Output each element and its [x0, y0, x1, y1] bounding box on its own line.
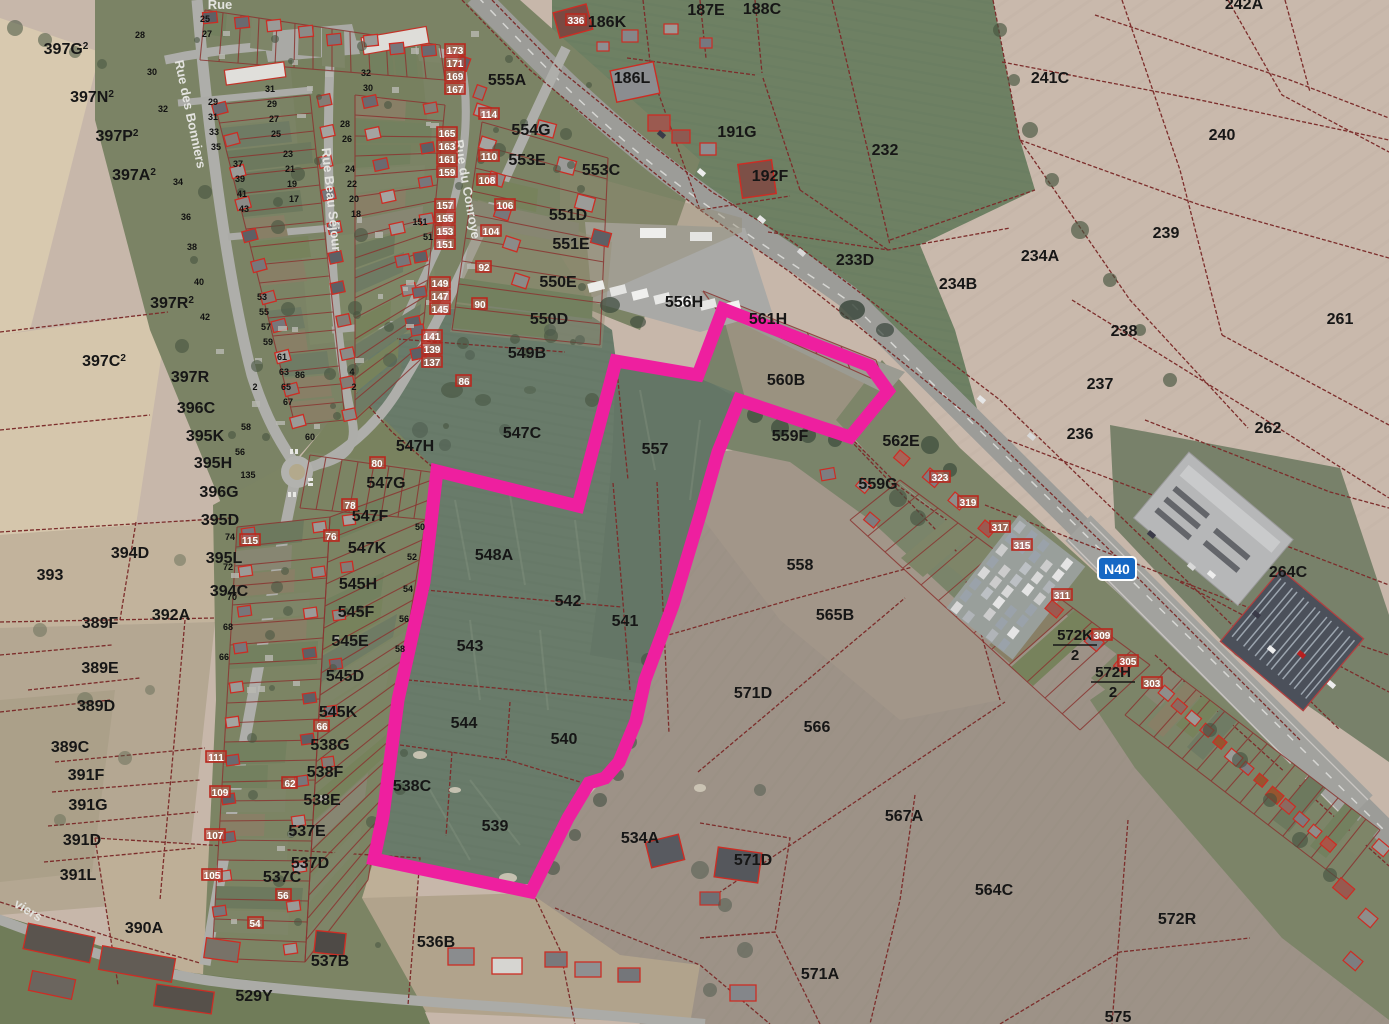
- svg-text:171: 171: [447, 59, 464, 70]
- svg-text:192F: 192F: [752, 168, 789, 185]
- svg-text:106: 106: [497, 201, 514, 212]
- svg-text:233D: 233D: [836, 252, 874, 269]
- svg-text:397P2: 397P2: [96, 128, 139, 145]
- svg-text:536B: 536B: [417, 934, 455, 951]
- svg-text:54: 54: [403, 584, 413, 594]
- svg-text:90: 90: [474, 300, 486, 311]
- svg-text:537B: 537B: [311, 953, 349, 970]
- svg-text:17: 17: [289, 194, 299, 204]
- svg-text:33: 33: [209, 127, 219, 137]
- svg-text:187E: 187E: [687, 2, 725, 19]
- svg-text:22: 22: [347, 179, 357, 189]
- svg-text:163: 163: [439, 142, 456, 153]
- svg-text:315: 315: [1014, 541, 1031, 552]
- svg-text:21: 21: [285, 164, 295, 174]
- svg-text:25: 25: [200, 14, 210, 24]
- svg-text:42: 42: [200, 312, 210, 322]
- svg-text:60: 60: [305, 432, 315, 442]
- svg-text:395D: 395D: [201, 512, 239, 529]
- svg-text:78: 78: [344, 501, 356, 512]
- svg-text:567A: 567A: [885, 808, 924, 825]
- svg-text:151: 151: [412, 217, 427, 227]
- svg-text:234A: 234A: [1021, 248, 1060, 265]
- svg-text:32: 32: [361, 68, 371, 78]
- svg-text:169: 169: [447, 72, 464, 83]
- svg-text:54: 54: [249, 919, 261, 930]
- svg-text:239: 239: [1153, 225, 1180, 242]
- svg-text:562E: 562E: [882, 433, 920, 450]
- svg-text:305: 305: [1120, 657, 1137, 668]
- svg-text:186K: 186K: [588, 14, 627, 31]
- svg-text:59: 59: [263, 337, 273, 347]
- svg-text:80: 80: [371, 459, 383, 470]
- svg-text:165: 165: [439, 129, 456, 140]
- svg-text:109: 109: [212, 788, 229, 799]
- svg-text:39: 39: [235, 174, 245, 184]
- svg-text:547H: 547H: [396, 438, 434, 455]
- svg-text:551E: 551E: [552, 236, 590, 253]
- svg-text:139: 139: [424, 345, 441, 356]
- svg-text:92: 92: [478, 263, 490, 274]
- svg-text:241C: 241C: [1031, 70, 1070, 87]
- svg-text:58: 58: [395, 644, 405, 654]
- svg-text:36: 36: [181, 212, 191, 222]
- svg-text:551D: 551D: [549, 207, 587, 224]
- svg-text:541: 541: [612, 613, 639, 630]
- svg-text:191G: 191G: [717, 124, 756, 141]
- svg-text:20: 20: [349, 194, 359, 204]
- svg-text:262: 262: [1255, 420, 1282, 437]
- svg-text:240: 240: [1209, 127, 1236, 144]
- svg-text:35: 35: [211, 142, 221, 152]
- svg-text:323: 323: [932, 473, 949, 484]
- svg-text:547K: 547K: [348, 540, 387, 557]
- svg-text:19: 19: [287, 179, 297, 189]
- svg-text:63: 63: [279, 367, 289, 377]
- svg-text:86: 86: [458, 377, 470, 388]
- svg-text:391F: 391F: [68, 767, 105, 784]
- svg-text:571D: 571D: [734, 852, 772, 869]
- svg-text:24: 24: [345, 164, 355, 174]
- svg-text:28: 28: [340, 119, 350, 129]
- svg-text:159: 159: [439, 168, 456, 179]
- svg-text:548A: 548A: [475, 547, 514, 564]
- svg-text:557: 557: [642, 441, 669, 458]
- svg-text:37: 37: [233, 159, 243, 169]
- svg-text:40: 40: [194, 277, 204, 287]
- svg-text:30: 30: [147, 67, 157, 77]
- svg-text:537C: 537C: [263, 869, 302, 886]
- svg-text:397C2: 397C2: [82, 353, 126, 370]
- svg-text:317: 317: [992, 523, 1009, 534]
- svg-text:565B: 565B: [816, 607, 854, 624]
- svg-text:236: 236: [1067, 426, 1094, 443]
- svg-text:537E: 537E: [288, 823, 326, 840]
- svg-text:389D: 389D: [77, 698, 115, 715]
- svg-text:391G: 391G: [68, 797, 107, 814]
- svg-text:390A: 390A: [125, 920, 164, 937]
- svg-text:391L: 391L: [60, 867, 97, 884]
- svg-text:572K: 572K: [1057, 627, 1093, 644]
- svg-text:549B: 549B: [508, 345, 546, 362]
- svg-text:56: 56: [399, 614, 409, 624]
- svg-text:56: 56: [235, 447, 245, 457]
- svg-text:545H: 545H: [339, 576, 377, 593]
- svg-text:566: 566: [804, 719, 831, 736]
- svg-text:389F: 389F: [82, 615, 119, 632]
- svg-text:558: 558: [787, 557, 814, 574]
- svg-text:397N2: 397N2: [70, 89, 114, 106]
- svg-text:74: 74: [225, 532, 235, 542]
- svg-text:2: 2: [351, 382, 356, 392]
- svg-text:538C: 538C: [393, 778, 432, 795]
- svg-text:264C: 264C: [1269, 564, 1308, 581]
- svg-text:186L: 186L: [614, 70, 651, 87]
- svg-text:108: 108: [479, 176, 496, 187]
- svg-text:149: 149: [432, 279, 449, 290]
- svg-text:396G: 396G: [199, 484, 238, 501]
- svg-text:539: 539: [482, 818, 509, 835]
- svg-text:550D: 550D: [530, 311, 568, 328]
- svg-text:111: 111: [208, 753, 224, 764]
- svg-text:545F: 545F: [338, 604, 375, 621]
- svg-text:151: 151: [437, 240, 454, 251]
- svg-text:23: 23: [283, 149, 293, 159]
- svg-text:529Y: 529Y: [235, 988, 273, 1005]
- svg-text:155: 155: [437, 214, 454, 225]
- svg-text:309: 309: [1094, 631, 1111, 642]
- svg-text:114: 114: [481, 110, 498, 121]
- svg-text:53: 53: [257, 292, 267, 302]
- svg-text:29: 29: [267, 99, 277, 109]
- svg-text:51: 51: [423, 232, 433, 242]
- svg-text:319: 319: [960, 498, 977, 509]
- svg-text:29: 29: [208, 97, 218, 107]
- svg-text:392A: 392A: [152, 607, 191, 624]
- svg-text:540: 540: [551, 731, 578, 748]
- svg-text:395K: 395K: [186, 428, 225, 445]
- svg-text:397R: 397R: [171, 369, 210, 386]
- svg-text:153: 153: [437, 227, 454, 238]
- svg-text:538F: 538F: [307, 764, 344, 781]
- svg-text:30: 30: [363, 83, 373, 93]
- svg-text:336: 336: [568, 16, 585, 27]
- svg-text:56: 56: [277, 891, 289, 902]
- svg-text:61: 61: [277, 352, 287, 362]
- svg-text:394D: 394D: [111, 545, 149, 562]
- svg-text:571A: 571A: [801, 966, 840, 983]
- svg-text:237: 237: [1087, 376, 1114, 393]
- svg-text:141: 141: [424, 332, 441, 343]
- svg-text:397R2: 397R2: [150, 295, 194, 312]
- svg-text:391D: 391D: [63, 832, 101, 849]
- svg-text:41: 41: [237, 189, 247, 199]
- svg-text:107: 107: [207, 831, 224, 842]
- svg-text:559G: 559G: [858, 476, 897, 493]
- svg-text:31: 31: [208, 112, 218, 122]
- svg-text:545E: 545E: [331, 633, 369, 650]
- svg-text:232: 232: [872, 142, 899, 159]
- svg-text:135: 135: [240, 470, 255, 480]
- svg-text:572R: 572R: [1158, 911, 1197, 928]
- svg-text:76: 76: [325, 532, 337, 543]
- svg-text:538G: 538G: [310, 737, 349, 754]
- svg-text:Rue: Rue: [208, 0, 233, 12]
- svg-text:547G: 547G: [366, 475, 405, 492]
- svg-text:561H: 561H: [749, 311, 787, 328]
- svg-text:311: 311: [1054, 591, 1071, 602]
- svg-text:62: 62: [284, 779, 296, 790]
- svg-text:110: 110: [481, 152, 498, 163]
- svg-text:43: 43: [239, 204, 249, 214]
- svg-text:70: 70: [227, 592, 237, 602]
- svg-text:555A: 555A: [488, 72, 527, 89]
- svg-text:68: 68: [223, 622, 233, 632]
- svg-text:534A: 534A: [621, 830, 660, 847]
- svg-text:167: 167: [447, 85, 464, 96]
- svg-text:137: 137: [424, 358, 441, 369]
- svg-text:397A2: 397A2: [112, 167, 156, 184]
- svg-text:543: 543: [457, 638, 484, 655]
- svg-text:55: 55: [259, 307, 269, 317]
- svg-text:105: 105: [204, 871, 221, 882]
- svg-text:389E: 389E: [81, 660, 119, 677]
- svg-text:242A: 242A: [1225, 0, 1264, 13]
- svg-text:545K: 545K: [319, 704, 358, 721]
- svg-text:57: 57: [261, 322, 271, 332]
- svg-text:397G2: 397G2: [44, 41, 89, 58]
- svg-text:27: 27: [269, 114, 279, 124]
- svg-text:26: 26: [342, 134, 352, 144]
- svg-text:559F: 559F: [772, 428, 809, 445]
- svg-text:67: 67: [283, 397, 293, 407]
- svg-text:N40: N40: [1104, 561, 1130, 577]
- svg-text:553C: 553C: [582, 162, 621, 179]
- svg-text:547C: 547C: [503, 425, 542, 442]
- svg-text:147: 147: [432, 292, 449, 303]
- svg-text:389C: 389C: [51, 739, 90, 756]
- svg-text:261: 261: [1327, 311, 1354, 328]
- svg-text:157: 157: [437, 201, 454, 212]
- svg-text:2: 2: [1109, 684, 1117, 701]
- svg-text:38: 38: [187, 242, 197, 252]
- svg-text:395H: 395H: [194, 455, 232, 472]
- svg-text:234B: 234B: [939, 276, 977, 293]
- svg-text:65: 65: [281, 382, 291, 392]
- svg-text:115: 115: [242, 536, 259, 547]
- svg-text:238: 238: [1111, 323, 1138, 340]
- svg-text:560B: 560B: [767, 372, 805, 389]
- svg-text:553E: 553E: [508, 152, 546, 169]
- svg-text:554G: 554G: [511, 122, 550, 139]
- svg-text:564C: 564C: [975, 882, 1014, 899]
- svg-text:66: 66: [219, 652, 229, 662]
- svg-text:4: 4: [349, 367, 354, 377]
- svg-text:145: 145: [432, 305, 449, 316]
- svg-text:31: 31: [265, 84, 275, 94]
- svg-text:550E: 550E: [539, 274, 577, 291]
- svg-text:2: 2: [252, 382, 257, 392]
- svg-text:86: 86: [295, 370, 305, 380]
- svg-text:32: 32: [158, 104, 168, 114]
- svg-text:50: 50: [415, 522, 425, 532]
- svg-text:544: 544: [451, 715, 478, 732]
- svg-text:2: 2: [1071, 647, 1079, 664]
- svg-text:556H: 556H: [665, 294, 703, 311]
- svg-text:396C: 396C: [177, 400, 216, 417]
- svg-text:393: 393: [37, 567, 64, 584]
- svg-text:25: 25: [271, 129, 281, 139]
- svg-text:72: 72: [223, 562, 233, 572]
- svg-text:104: 104: [483, 227, 500, 238]
- svg-text:188C: 188C: [743, 1, 782, 18]
- svg-text:571D: 571D: [734, 685, 772, 702]
- svg-text:27: 27: [202, 29, 212, 39]
- svg-text:542: 542: [555, 593, 582, 610]
- svg-text:34: 34: [173, 177, 183, 187]
- svg-text:66: 66: [316, 722, 328, 733]
- svg-text:173: 173: [447, 46, 464, 57]
- svg-text:18: 18: [351, 209, 361, 219]
- svg-text:58: 58: [241, 422, 251, 432]
- svg-text:52: 52: [407, 552, 417, 562]
- svg-text:28: 28: [135, 30, 145, 40]
- svg-text:575: 575: [1105, 1009, 1132, 1024]
- svg-text:538E: 538E: [303, 792, 341, 809]
- svg-text:303: 303: [1144, 679, 1161, 690]
- svg-text:161: 161: [439, 155, 456, 166]
- svg-text:545D: 545D: [326, 668, 364, 685]
